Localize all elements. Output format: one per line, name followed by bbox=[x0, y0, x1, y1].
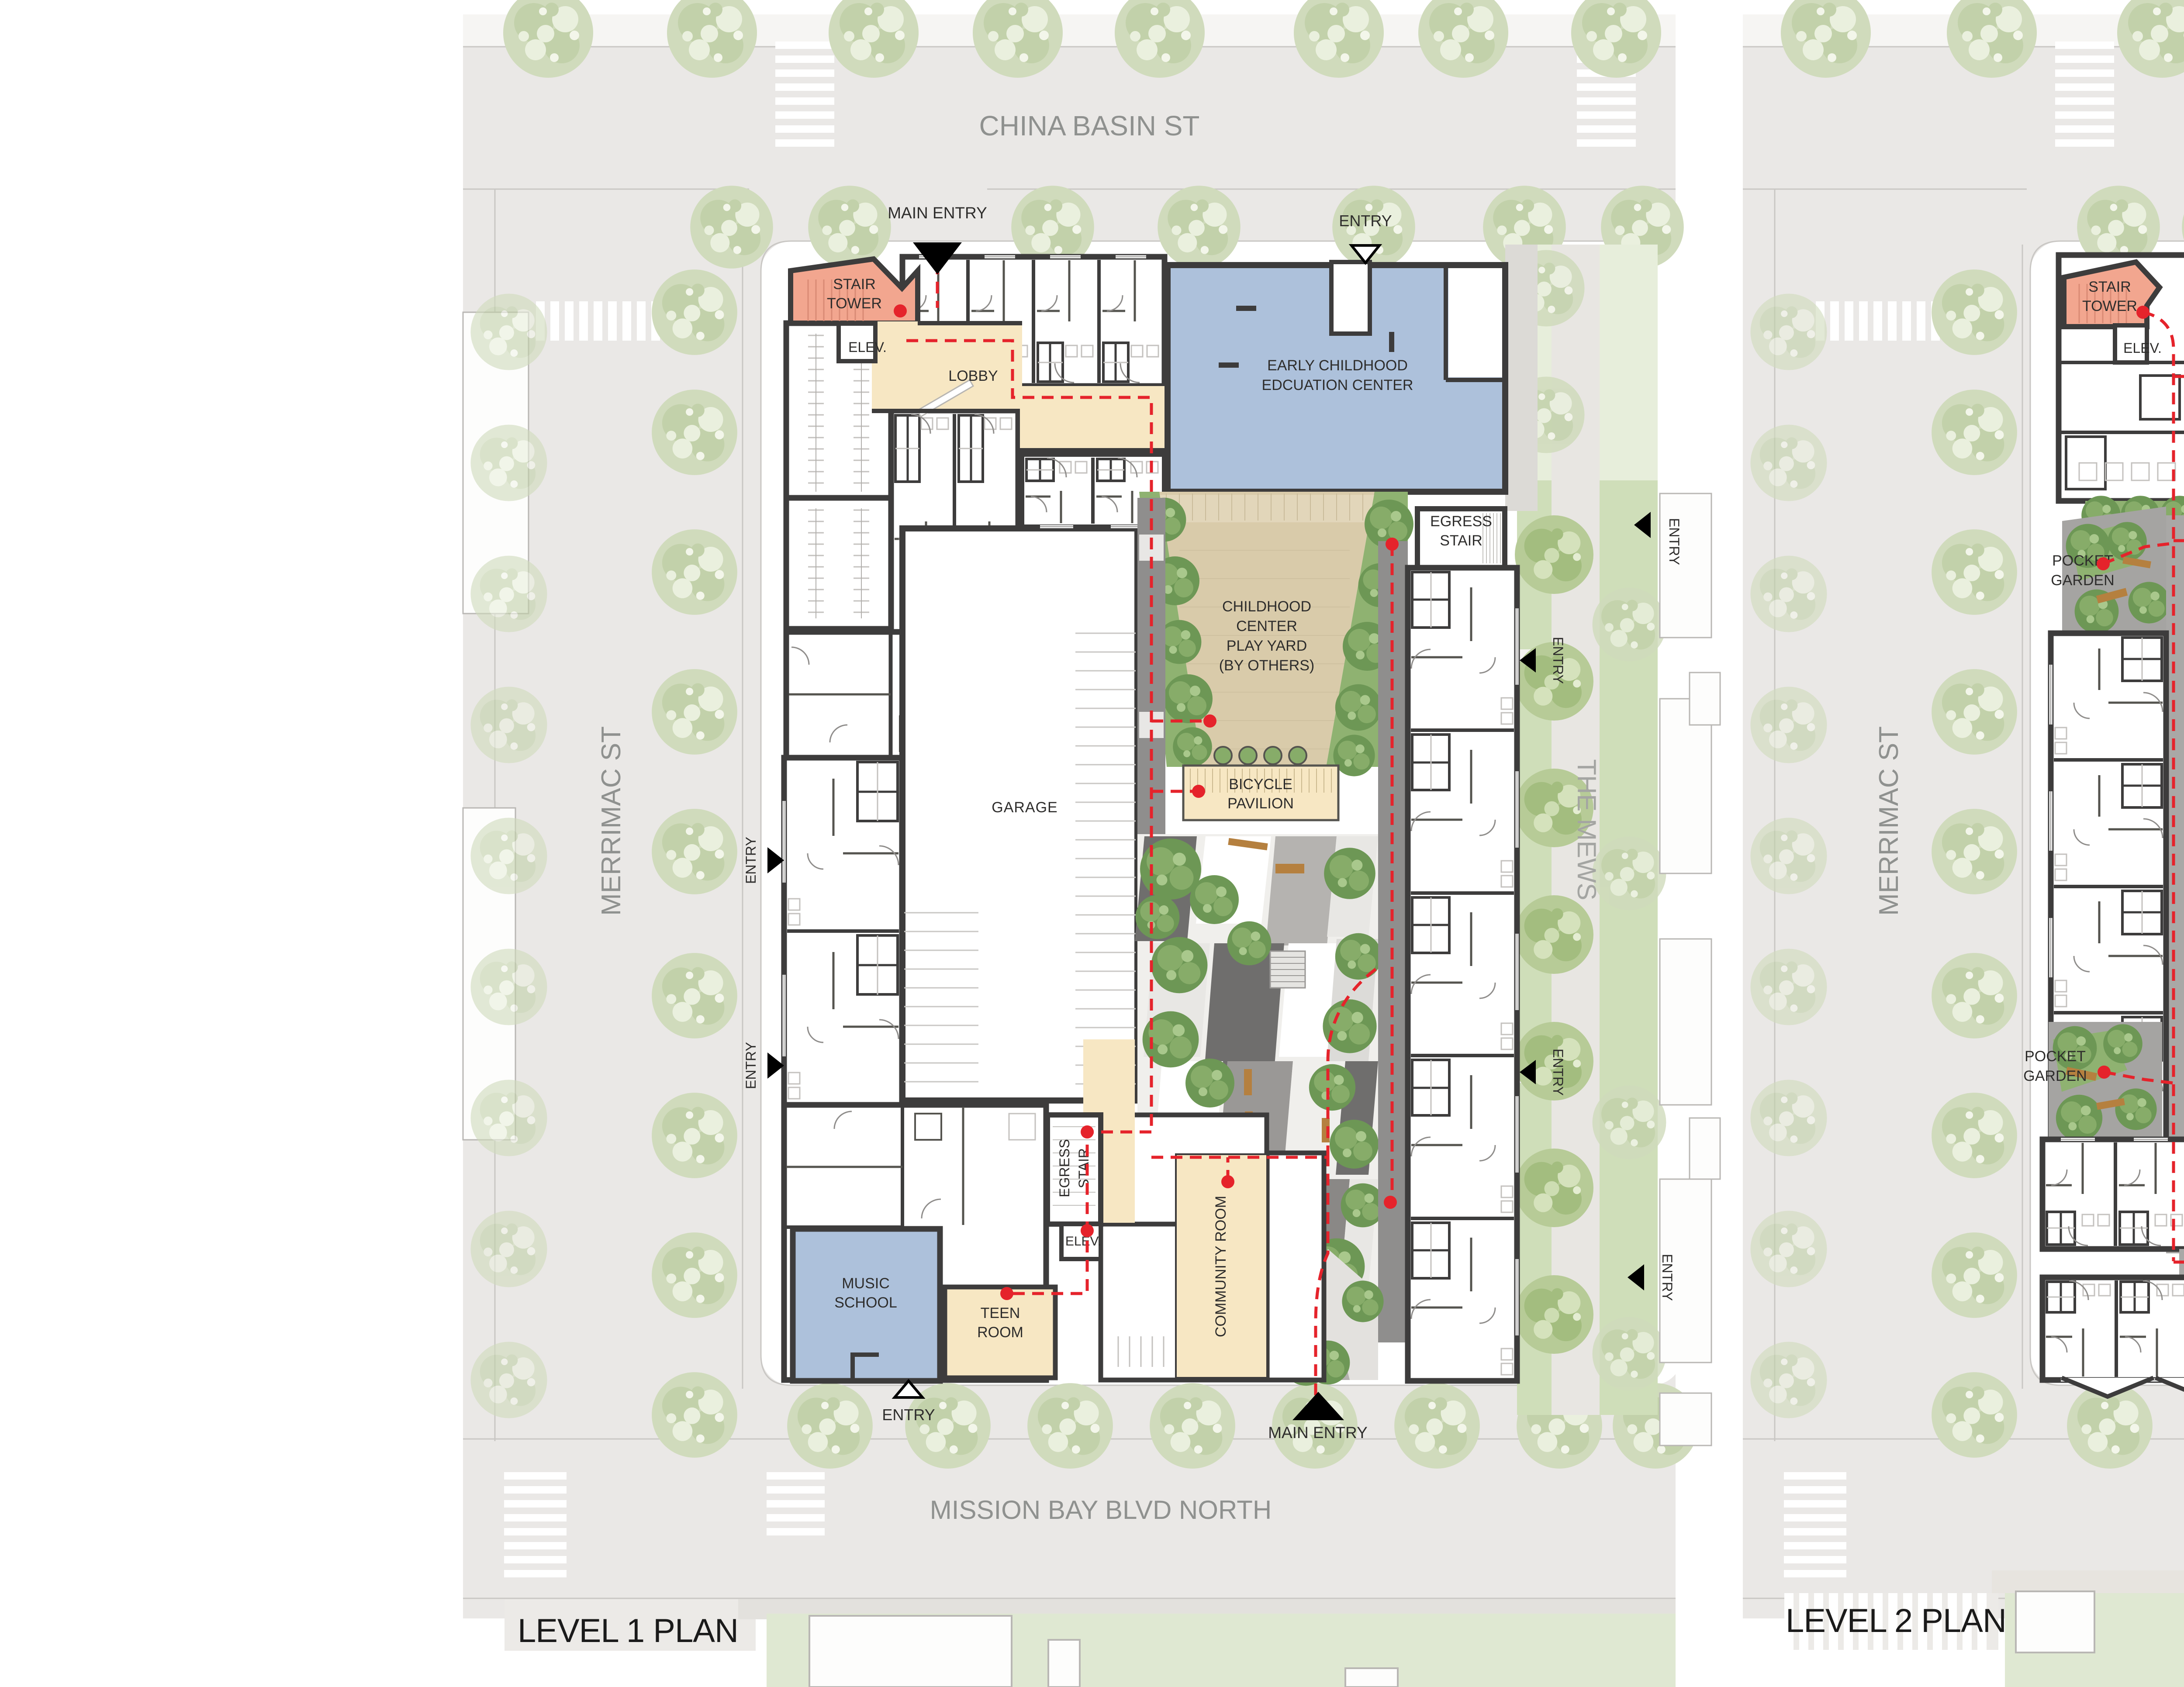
svg-text:GARDEN: GARDEN bbox=[2023, 1068, 2087, 1084]
svg-text:MUSIC: MUSIC bbox=[842, 1275, 890, 1292]
svg-text:EDCUATION CENTER: EDCUATION CENTER bbox=[1262, 377, 1413, 393]
svg-text:POCKET: POCKET bbox=[2025, 1048, 2086, 1065]
svg-text:BICYCLE: BICYCLE bbox=[1229, 776, 1292, 793]
svg-text:MISSION BAY BLVD NORTH: MISSION BAY BLVD NORTH bbox=[930, 1495, 1272, 1525]
svg-text:CHILDHOOD: CHILDHOOD bbox=[1222, 598, 1311, 615]
svg-text:MAIN ENTRY: MAIN ENTRY bbox=[888, 204, 987, 222]
svg-text:LEVEL 1 PLAN: LEVEL 1 PLAN bbox=[518, 1612, 738, 1649]
svg-text:ROOM: ROOM bbox=[977, 1324, 1023, 1341]
svg-text:SCHOOL: SCHOOL bbox=[834, 1294, 897, 1311]
svg-text:TOWER: TOWER bbox=[827, 295, 882, 312]
svg-text:ELEV.: ELEV. bbox=[2123, 340, 2162, 356]
svg-text:LOBBY: LOBBY bbox=[948, 368, 998, 384]
svg-text:ELEV.: ELEV. bbox=[848, 339, 887, 355]
svg-text:TOWER: TOWER bbox=[2082, 298, 2137, 314]
svg-text:MAIN ENTRY: MAIN ENTRY bbox=[1268, 1424, 1368, 1442]
svg-text:ENTRY: ENTRY bbox=[743, 1042, 759, 1089]
svg-text:GARDEN: GARDEN bbox=[2051, 572, 2114, 589]
svg-text:CENTER: CENTER bbox=[1236, 618, 1297, 635]
svg-text:EGRESS: EGRESS bbox=[1057, 1139, 1072, 1197]
svg-text:THE MEWS: THE MEWS bbox=[1572, 759, 1601, 900]
svg-text:GARAGE: GARAGE bbox=[992, 799, 1057, 816]
svg-text:EGRESS: EGRESS bbox=[1430, 513, 1492, 530]
svg-text:ENTRY: ENTRY bbox=[743, 837, 759, 884]
svg-text:ENTRY: ENTRY bbox=[1339, 212, 1392, 230]
svg-text:TEEN: TEEN bbox=[981, 1305, 1020, 1321]
svg-text:EARLY CHILDHOOD: EARLY CHILDHOOD bbox=[1267, 357, 1408, 374]
svg-text:(BY OTHERS): (BY OTHERS) bbox=[1219, 657, 1315, 674]
svg-text:ELEV.: ELEV. bbox=[1065, 1234, 1101, 1249]
svg-text:ENTRY: ENTRY bbox=[1550, 637, 1566, 684]
svg-text:MERRIMAC ST: MERRIMAC ST bbox=[1874, 726, 1904, 916]
svg-text:PAVILION: PAVILION bbox=[1227, 795, 1294, 812]
svg-text:COMMUNITY ROOM: COMMUNITY ROOM bbox=[1213, 1196, 1229, 1337]
svg-text:CHINA BASIN ST: CHINA BASIN ST bbox=[979, 110, 1200, 141]
svg-text:PLAY YARD: PLAY YARD bbox=[1227, 638, 1307, 654]
svg-text:STAIR: STAIR bbox=[1440, 532, 1482, 549]
svg-text:ENTRY: ENTRY bbox=[1550, 1049, 1566, 1096]
svg-text:MERRIMAC ST: MERRIMAC ST bbox=[596, 726, 626, 916]
svg-text:LEVEL 2 PLAN: LEVEL 2 PLAN bbox=[1786, 1602, 2006, 1639]
svg-text:ENTRY: ENTRY bbox=[882, 1406, 935, 1424]
svg-text:STAIR: STAIR bbox=[1076, 1148, 1092, 1188]
svg-text:STAIR: STAIR bbox=[2088, 279, 2131, 295]
svg-text:ENTRY: ENTRY bbox=[1659, 1254, 1675, 1301]
svg-text:STAIR: STAIR bbox=[833, 276, 876, 293]
svg-text:ENTRY: ENTRY bbox=[1666, 518, 1682, 565]
